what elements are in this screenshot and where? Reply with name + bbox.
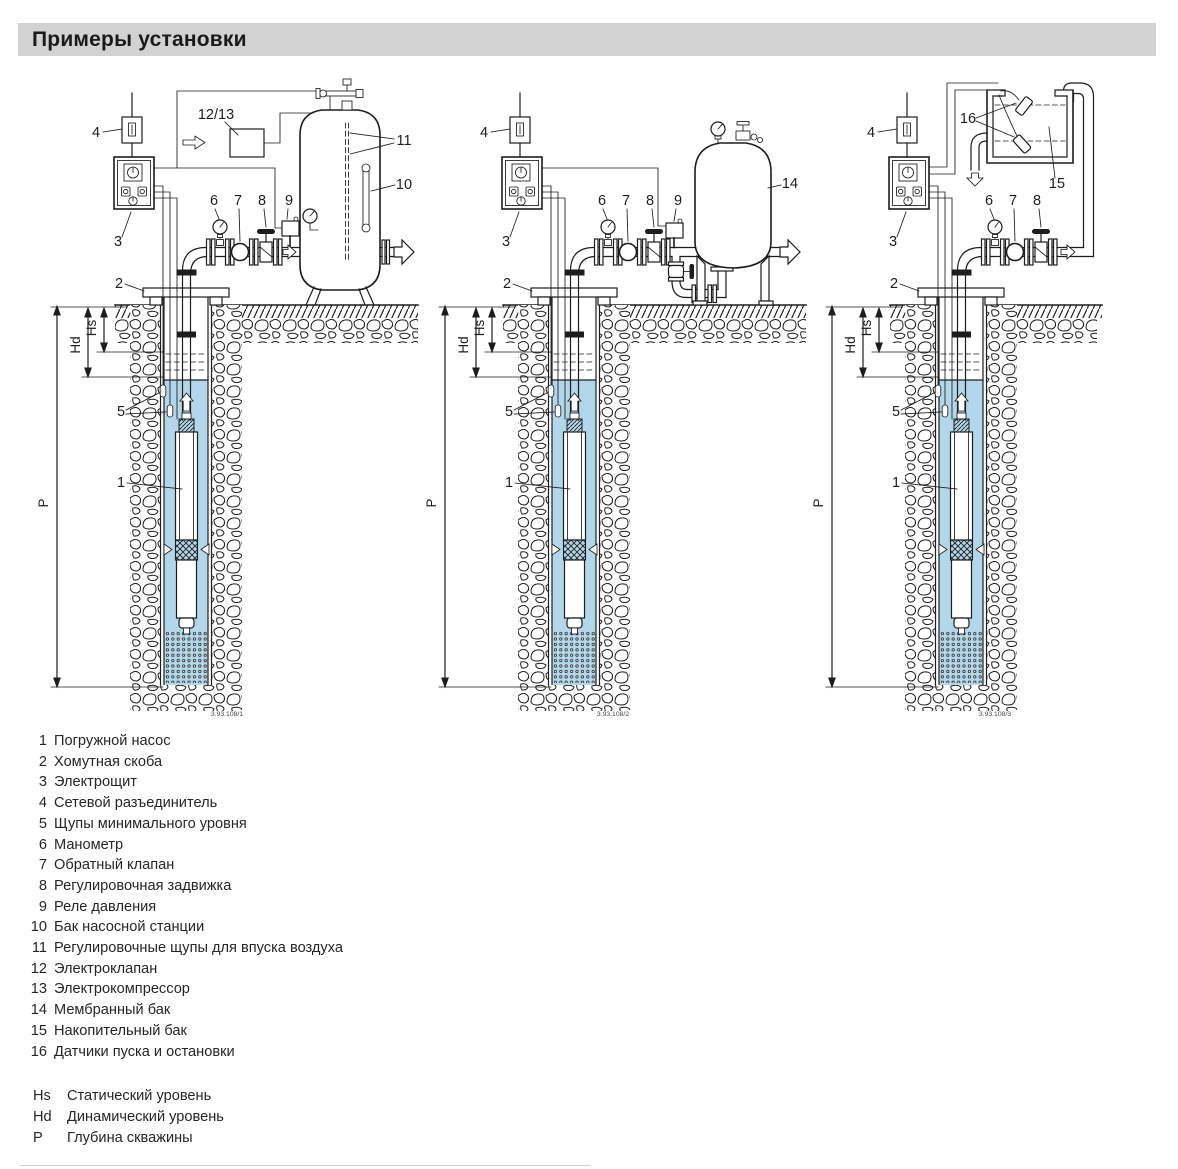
callout-10: 10 <box>396 177 412 193</box>
level-legend-item: HsСтатический уровень <box>20 1086 224 1107</box>
legend-item: 9Реле давления <box>20 897 343 918</box>
page: Примеры установки <box>0 0 1178 1169</box>
legend-item: 5Щупы минимального уровня <box>20 814 343 835</box>
legend-item: 4Сетевой разъединитель <box>20 793 343 814</box>
pipe-to-tank <box>282 245 300 259</box>
callout-11: 11 <box>396 133 411 149</box>
outflow-arrow-icon <box>394 240 414 264</box>
legend-item: 15Накопительный бак <box>20 1021 343 1042</box>
figure-number: 3.93.108/3 <box>979 711 1011 718</box>
diagram-membrane-tank: 9 <box>418 75 808 730</box>
diagram-storage-tank: 16 15 3.93.108/3 <box>805 75 1178 730</box>
tank-outlet <box>380 240 414 264</box>
legend-item: 1Погружной насос <box>20 731 343 752</box>
level-legend-item: HdДинамический уровень <box>20 1107 224 1128</box>
callout-14: 14 <box>782 176 798 192</box>
legend-item: 12Электроклапан <box>20 959 343 980</box>
callout-9: 9 <box>285 193 293 209</box>
pressure-switch: 9 <box>282 193 299 248</box>
callout-12-13: 12/13 <box>198 107 234 123</box>
page-title: Примеры установки <box>18 28 247 52</box>
level-legend: HsСтатический уровень HdДинамический уро… <box>20 1086 224 1149</box>
membrane-tank: 14 <box>693 122 798 306</box>
ground-right <box>212 305 418 343</box>
figure-number: 3.93.108/2 <box>597 711 629 718</box>
pump-station-tank: 10 11 <box>300 79 414 305</box>
sight-level-tube <box>362 164 370 232</box>
figure-number: 3.93.108/1 <box>211 711 243 718</box>
callout-15: 15 <box>1049 176 1065 192</box>
callout-9: 9 <box>674 193 682 209</box>
legend-item: 2Хомутная скоба <box>20 752 343 773</box>
outflow-arrow-icon <box>780 240 800 264</box>
legend-item: 6Манометр <box>20 835 343 856</box>
drain-arrow-icon <box>967 173 983 186</box>
tank-top-valve-cluster <box>316 79 363 110</box>
ground-right <box>600 305 806 343</box>
air-inlet-arrow-icon <box>183 136 205 149</box>
legend-item: 11Регулировочные щупы для впуска воздуха <box>20 938 343 959</box>
diagram-pump-station-tank: 12/13 9 <box>30 75 420 730</box>
solenoid-compressor-box: 12/13 <box>183 107 264 157</box>
level-legend-item: PГлубина скважины <box>20 1128 224 1149</box>
section-title-bar: Примеры установки <box>18 23 1156 56</box>
legend-item: 16Датчики пуска и остановки <box>20 1042 343 1063</box>
legend-item: 13Электрокомпрессор <box>20 979 343 1000</box>
storage-tank: 16 15 <box>960 90 1073 192</box>
legend-item: 3Электрощит <box>20 772 343 793</box>
callout-16: 16 <box>960 111 976 127</box>
legend-item: 10Бак насосной станции <box>20 917 343 938</box>
tank-top-fittings <box>711 122 763 145</box>
legend-item: 7Обратный клапан <box>20 855 343 876</box>
legend-item: 14Мембранный бак <box>20 1000 343 1021</box>
bottom-divider <box>20 1165 590 1166</box>
overflow-drain <box>967 133 987 186</box>
legend-item: 8Регулировочная задвижка <box>20 876 343 897</box>
legend: 1Погружной насос 2Хомутная скоба 3Электр… <box>20 731 343 1062</box>
